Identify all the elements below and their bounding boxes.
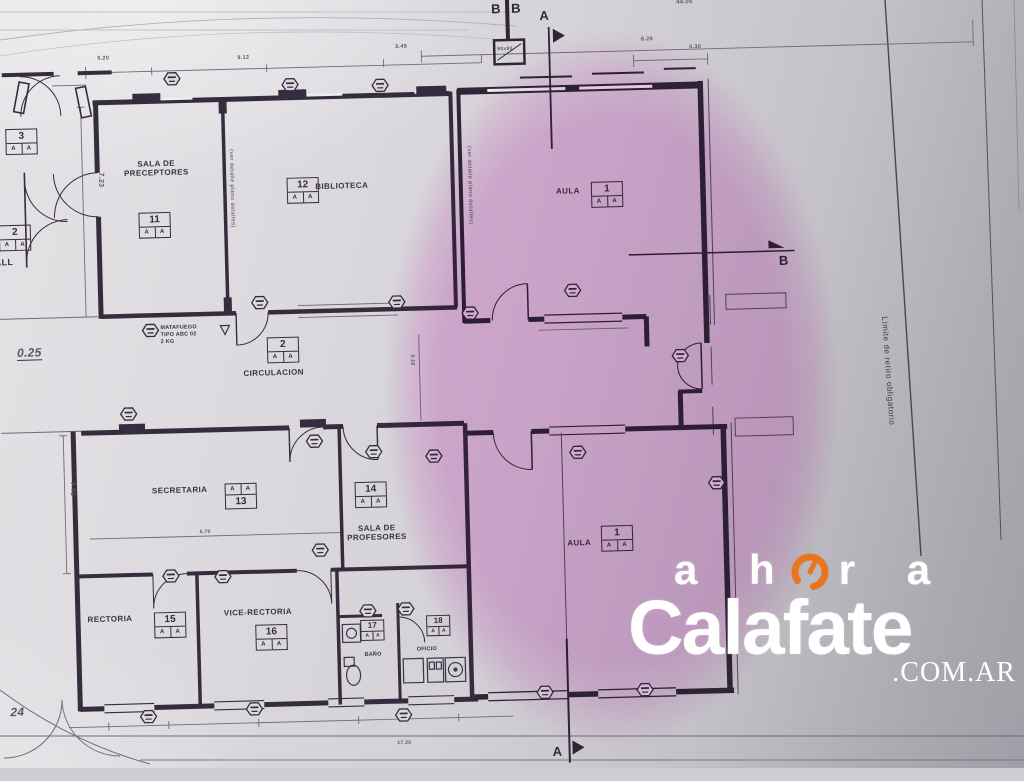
room-tag-14-sub: A A <box>356 496 386 507</box>
room-label-rectoria: RECTORIA <box>84 614 136 624</box>
dim-bottom-left: 24 <box>10 705 24 719</box>
room-tag-17: 17 A A <box>360 619 385 641</box>
wall-note-biblioteca: (ver detalle plano detalles) <box>228 149 236 228</box>
dim-top-5: 0.30 <box>689 44 701 50</box>
room-tag-12-number: 12 <box>288 178 318 193</box>
room-tag-3: 3 A A <box>5 128 38 155</box>
room-label-oficio: OFICIO <box>413 646 441 653</box>
room-tag-13-number: 13 <box>226 494 256 509</box>
room-tag-12: 12 A A <box>287 177 320 204</box>
room-tag-3-sub: A A <box>7 143 37 154</box>
room-tag-17-sub: A A <box>361 631 383 640</box>
room-tag-15: 15 A A <box>154 612 187 639</box>
room-label-profesores: SALA DE PROFESORES <box>346 523 408 543</box>
dim-top-3: 3.49 <box>395 44 407 50</box>
room-tag-16-sub: A A <box>257 639 287 650</box>
matafuego-note-line2: TIPO ABC 02 <box>161 331 201 338</box>
room-tag-16: 16 A A <box>255 624 288 651</box>
room-label-preceptores: SALA DE PRECEPTORES <box>120 158 192 178</box>
room-label-bano: BAÑO <box>360 651 386 658</box>
dim-left-vertical-1: 7.23 <box>97 173 104 188</box>
watermark: a h r a Calafate .COM.AR <box>628 546 1024 689</box>
room-label-circulacion: CIRCULACION <box>240 367 308 378</box>
level-mark: 0.25 <box>17 345 42 361</box>
section-marker-b-top-1: B <box>491 1 501 16</box>
room-tag-14: 14 A A <box>355 481 388 508</box>
room-tag-11: 11 A A <box>138 212 171 239</box>
dim-secretaria-width: 5.70 <box>200 529 211 535</box>
section-marker-a-bottom: A <box>552 744 562 759</box>
matafuego-note-line1: MATAFUEGO <box>160 324 200 331</box>
dim-top-right-total: 44.05 <box>676 0 693 6</box>
room-tag-2: 2 A A <box>267 337 300 364</box>
room-tag-12-sub: A A <box>288 192 318 203</box>
room-tag-3-number: 3 <box>6 129 36 144</box>
room-tag-2-number: 2 <box>268 338 298 353</box>
room-tag-2-sub: A A <box>268 352 298 363</box>
room-tag-2-left-number: 2 <box>0 226 30 241</box>
room-tag-15-number: 15 <box>155 613 185 628</box>
room-tag-17-number: 17 <box>361 620 383 632</box>
matafuego-note-line3: 2 KG <box>161 338 201 345</box>
room-tag-2-left-sub: A A <box>0 240 30 251</box>
room-tag-11-number: 11 <box>139 213 169 228</box>
room-tag-2-left: 2 A A <box>0 225 31 252</box>
dim-top-1: 5.20 <box>97 55 109 61</box>
dim-top-2: 9.12 <box>237 55 249 61</box>
room-label-secretaria: SECRETARIA <box>149 485 211 496</box>
dim-left-vertical-2: 3.92 <box>69 481 76 496</box>
room-label-hall-partial: ALL <box>0 258 25 268</box>
section-marker-a-top: A <box>539 8 549 23</box>
dim-bottom-total: 17.26 <box>397 740 411 746</box>
room-tag-15-sub: A A <box>155 627 185 638</box>
room-label-vice-rectoria: VICE-RECTORIA <box>222 607 294 618</box>
section-marker-b-top-2: B <box>511 1 521 16</box>
room-tag-14-number: 14 <box>356 482 386 497</box>
room-tag-11-sub: A A <box>140 227 170 238</box>
room-tag-13-sub: A A <box>226 484 256 495</box>
room-tag-13: 13 A A <box>225 483 258 510</box>
column-size-tag: 90x90 <box>497 46 513 52</box>
room-tag-16-number: 16 <box>256 625 286 640</box>
